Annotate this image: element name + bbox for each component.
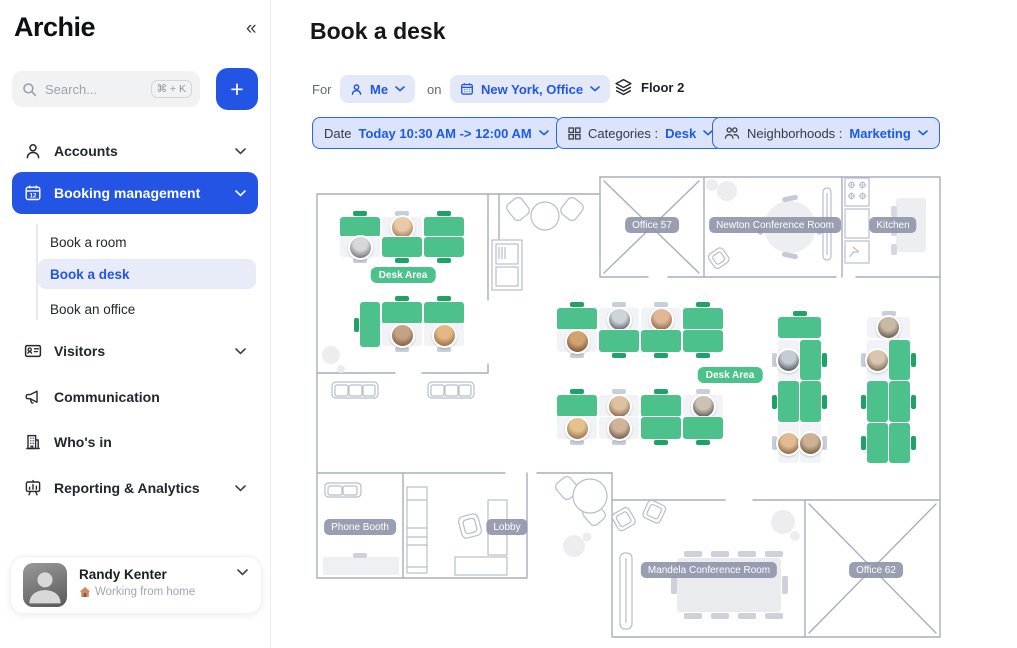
app-logo: Archie	[14, 12, 95, 43]
chevron-down-icon	[539, 130, 549, 136]
chevron-down-icon	[235, 348, 246, 355]
desk-chair-tab	[437, 211, 451, 216]
add-button[interactable]: +	[216, 68, 258, 110]
search-shortcut-badge: ⌘ + K	[151, 80, 192, 98]
desk-chair-tab	[437, 347, 451, 352]
person-avatar	[776, 348, 801, 373]
desk-chair-tab	[861, 395, 866, 409]
desk-chair-tab	[911, 353, 916, 367]
desk-available[interactable]	[683, 308, 723, 330]
person-avatar	[649, 307, 674, 332]
user-avatar	[23, 563, 67, 607]
desk-chair-tab	[822, 353, 827, 367]
person-avatar	[691, 394, 716, 419]
calendar-icon: 12	[24, 184, 42, 202]
search-input[interactable]: Search... ⌘ + K	[12, 71, 200, 107]
user-status-text: Working from home	[95, 586, 195, 598]
desk-chair-tab	[612, 440, 626, 445]
for-label: For	[312, 82, 332, 97]
desk-available[interactable]	[557, 395, 597, 417]
desk-occupied[interactable]	[867, 317, 910, 338]
desk-occupied[interactable]	[599, 395, 639, 417]
desk-chair-tab	[437, 296, 451, 301]
sidebar: Archie « Search... ⌘ + K + Accounts 12 B…	[0, 0, 271, 648]
desk-chair-tab	[822, 395, 827, 409]
layers-icon	[614, 78, 633, 97]
house-icon	[79, 586, 91, 598]
sidebar-item-book-a-desk[interactable]: Book a desk	[38, 259, 256, 289]
id-card-icon	[24, 342, 42, 360]
chevron-down-icon	[235, 190, 246, 197]
people-icon	[724, 126, 740, 140]
categories-label: Categories :	[588, 126, 658, 141]
page-title: Book a desk	[310, 18, 446, 45]
room-label: Phone Booth	[324, 519, 396, 535]
desk-available[interactable]	[683, 330, 723, 352]
desk-chair-tab	[570, 389, 584, 394]
desk-available[interactable]	[641, 330, 681, 352]
floorplan-map: Office 57Newton Conference RoomKitchenPh…	[308, 168, 950, 640]
person-avatar	[798, 431, 823, 456]
desk-available[interactable]	[778, 317, 821, 338]
person-avatar	[607, 416, 632, 441]
person-avatar	[876, 315, 901, 340]
desk-chair-tab	[654, 389, 668, 394]
sidebar-item-label: Accounts	[54, 143, 223, 159]
desk-chair-tab	[793, 311, 807, 316]
chevron-down-icon	[235, 485, 246, 492]
sidebar-item-label: Who's in	[54, 434, 246, 450]
categories-value: Desk	[665, 126, 696, 141]
user-name: Randy Kenter	[79, 567, 167, 582]
floorplan-desks: Office 57Newton Conference RoomKitchenPh…	[308, 168, 950, 640]
person-icon	[350, 83, 363, 96]
desk-chair-tab	[696, 440, 710, 445]
date-filter[interactable]: Date Today 10:30 AM -> 12:00 AM	[312, 117, 561, 149]
building-icon	[24, 433, 42, 451]
person-avatar	[565, 416, 590, 441]
search-icon	[22, 82, 37, 97]
desk-chair-tab	[654, 353, 668, 358]
sidebar-item-label: Booking management	[54, 185, 223, 201]
desk-available[interactable]	[382, 302, 422, 324]
desk-available[interactable]	[360, 302, 380, 347]
desk-available[interactable]	[424, 302, 464, 324]
floor-selector[interactable]: Floor 2	[614, 78, 684, 97]
chart-board-icon	[24, 479, 42, 497]
date-label: Date	[324, 126, 351, 141]
sidebar-item-visitors[interactable]: Visitors	[12, 331, 258, 371]
neighborhoods-filter[interactable]: Neighborhoods : Marketing	[712, 117, 940, 149]
desk-available[interactable]	[641, 417, 681, 439]
room-label: Newton Conference Room	[709, 217, 841, 233]
desk-chair-tab	[570, 302, 584, 307]
desk-available[interactable]	[889, 340, 910, 380]
collapse-sidebar-icon[interactable]: «	[246, 18, 257, 40]
desk-occupied[interactable]	[778, 340, 799, 380]
sidebar-item-whos-in[interactable]: Who's in	[12, 422, 258, 462]
desk-occupied[interactable]	[424, 324, 464, 346]
grid-icon	[568, 127, 581, 140]
desk-occupied[interactable]	[683, 395, 723, 417]
person-avatar	[432, 323, 457, 348]
desk-available[interactable]	[599, 330, 639, 352]
sidebar-item-reporting-analytics[interactable]: Reporting & Analytics	[12, 468, 258, 508]
sidebar-item-communication[interactable]: Communication	[12, 377, 258, 417]
sidebar-item-book-a-room[interactable]: Book a room	[50, 228, 256, 256]
calendar-icon	[460, 82, 474, 96]
person-icon	[24, 142, 42, 160]
desk-occupied[interactable]	[800, 423, 821, 463]
desk-chair-tab	[911, 395, 916, 409]
desk-chair-tab	[861, 436, 866, 450]
desk-occupied[interactable]	[599, 308, 639, 330]
location-selector[interactable]: New York, Office	[450, 75, 610, 103]
desk-chair-tab	[395, 296, 409, 301]
desk-chair-tab	[437, 258, 451, 263]
desk-available[interactable]	[889, 381, 910, 422]
person-avatar	[865, 348, 890, 373]
desk-chair-tab	[772, 395, 777, 409]
search-placeholder: Search...	[45, 82, 151, 97]
desk-chair-tab	[696, 302, 710, 307]
categories-filter[interactable]: Categories : Desk	[556, 117, 725, 149]
desk-chair-tab	[354, 318, 359, 332]
desk-chair-tab	[570, 353, 584, 358]
user-status: Working from home	[79, 586, 195, 598]
sidebar-item-accounts[interactable]: Accounts	[12, 131, 258, 171]
person-avatar	[607, 394, 632, 419]
location-value: New York, Office	[481, 82, 583, 97]
for-value: Me	[370, 82, 388, 97]
neighborhoods-label: Neighborhoods :	[747, 126, 842, 141]
on-label: on	[427, 82, 441, 97]
desk-available[interactable]	[889, 423, 910, 463]
desk-available[interactable]	[641, 395, 681, 417]
person-avatar	[348, 235, 373, 260]
desk-available[interactable]	[867, 423, 888, 463]
room-label: Office 62	[849, 562, 903, 578]
chevron-down-icon	[590, 86, 600, 92]
desk-available[interactable]	[424, 237, 464, 257]
date-value: Today 10:30 AM -> 12:00 AM	[358, 126, 531, 141]
desk-occupied[interactable]	[599, 417, 639, 439]
desk-occupied[interactable]	[778, 423, 799, 463]
desk-chair-tab	[395, 347, 409, 352]
sidebar-item-label: Reporting & Analytics	[54, 480, 223, 496]
person-avatar	[390, 323, 415, 348]
neighborhoods-value: Marketing	[849, 126, 910, 141]
desk-occupied[interactable]	[867, 340, 888, 380]
sidebar-item-label: Visitors	[54, 343, 223, 359]
floor-value: Floor 2	[641, 80, 684, 95]
desk-available[interactable]	[778, 381, 799, 422]
desk-available[interactable]	[867, 381, 888, 422]
desk-available[interactable]	[800, 381, 821, 422]
desk-occupied[interactable]	[557, 330, 597, 352]
megaphone-icon	[24, 388, 42, 406]
chevron-down-icon	[235, 148, 246, 155]
sidebar-item-label: Communication	[54, 389, 246, 405]
desk-occupied[interactable]	[641, 308, 681, 330]
room-label: Office 57	[625, 217, 679, 233]
person-avatar	[565, 329, 590, 354]
desk-area-label: Desk Area	[698, 367, 763, 383]
desk-occupied[interactable]	[382, 217, 422, 237]
for-selector[interactable]: Me	[340, 75, 415, 103]
desk-occupied[interactable]	[382, 324, 422, 346]
desk-chair-tab	[911, 436, 916, 450]
desk-chair-tab	[395, 258, 409, 263]
room-label: Kitchen	[869, 217, 916, 233]
desk-available[interactable]	[800, 340, 821, 380]
desk-chair-tab	[353, 211, 367, 216]
sidebar-item-booking-management[interactable]: 12 Booking management	[12, 172, 258, 214]
desk-area-label: Desk Area	[371, 267, 436, 283]
desk-occupied[interactable]	[340, 237, 380, 257]
person-avatar	[607, 307, 632, 332]
room-label: Mandela Conference Room	[641, 562, 777, 578]
desk-available[interactable]	[382, 237, 422, 257]
desk-occupied[interactable]	[557, 417, 597, 439]
desk-available[interactable]	[683, 417, 723, 439]
desk-available[interactable]	[557, 308, 597, 330]
chevron-down-icon	[237, 569, 248, 576]
sidebar-item-book-an-office[interactable]: Book an office	[50, 295, 256, 323]
chevron-down-icon	[395, 86, 405, 92]
desk-chair-tab	[570, 440, 584, 445]
desk-chair-tab	[696, 353, 710, 358]
person-avatar	[390, 215, 415, 240]
desk-chair-tab	[612, 353, 626, 358]
room-label: Lobby	[486, 519, 527, 535]
chevron-down-icon	[918, 130, 928, 136]
svg-text:12: 12	[30, 194, 37, 200]
user-card[interactable]: Randy Kenter Working from home	[10, 556, 262, 614]
desk-available[interactable]	[424, 217, 464, 237]
desk-chair-tab	[654, 440, 668, 445]
